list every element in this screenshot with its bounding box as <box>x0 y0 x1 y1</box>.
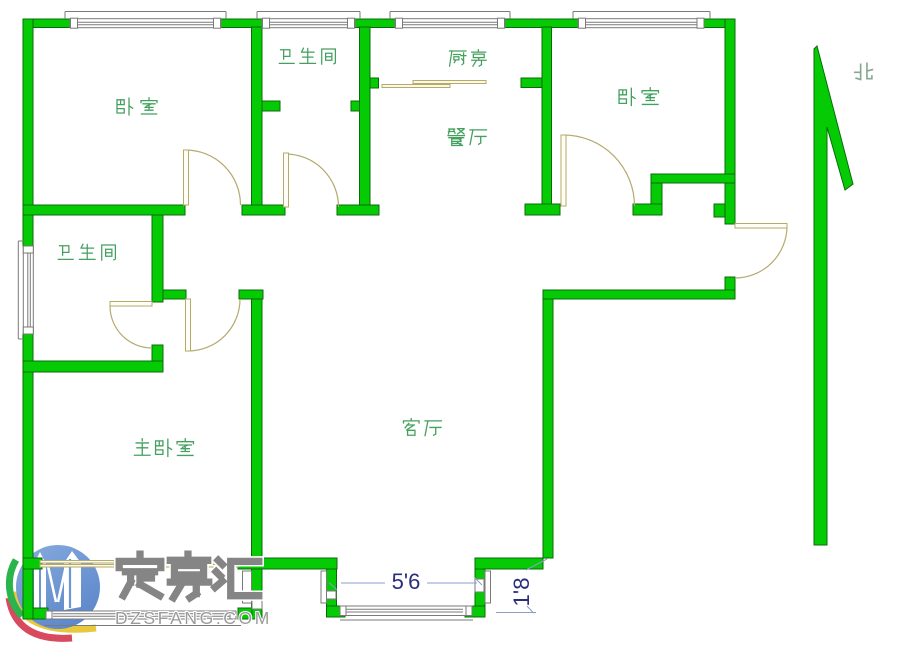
svg-text:DZSFANG.COM: DZSFANG.COM <box>115 608 272 628</box>
svg-text:5'6: 5'6 <box>392 569 421 594</box>
svg-text:1'8: 1'8 <box>509 577 534 606</box>
